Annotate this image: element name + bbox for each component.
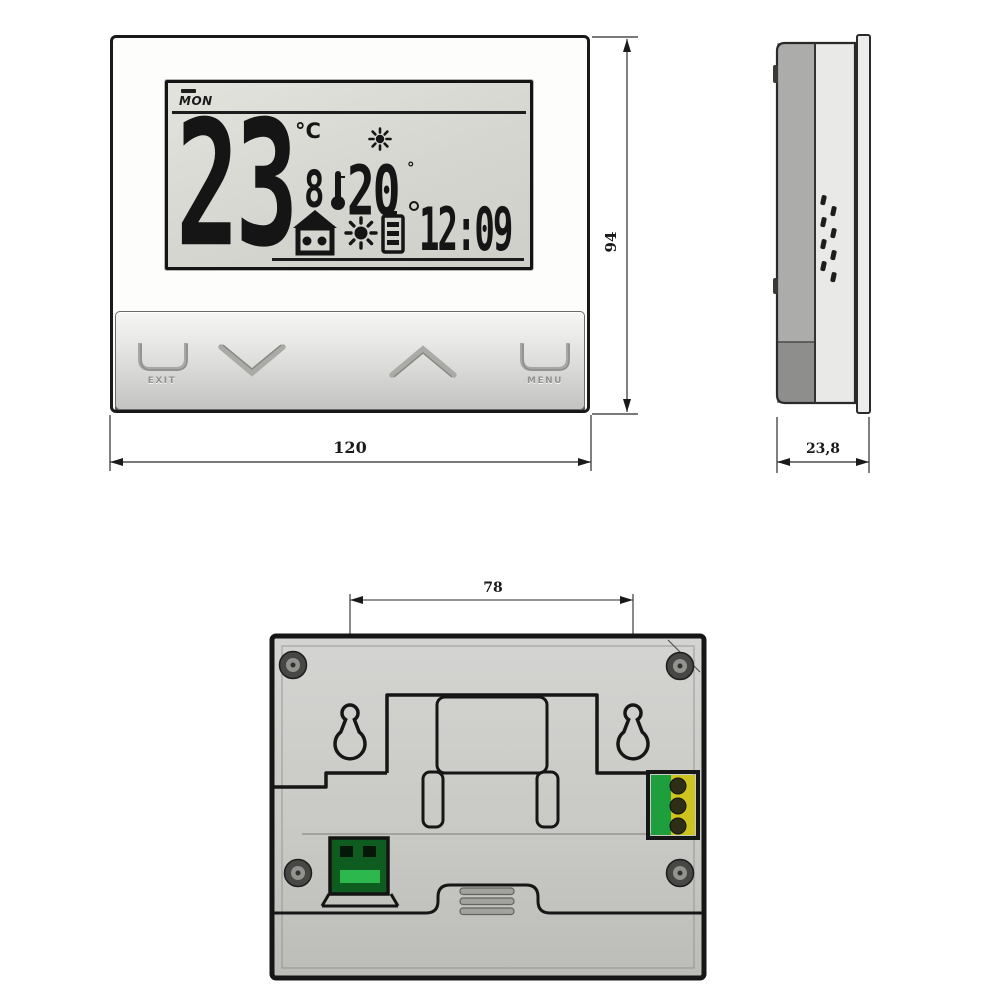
dimension-width-label: 120 [333,438,366,457]
battery-icon [381,210,405,254]
sun-icon [368,127,392,151]
lcd-setpoint-degree: ° [407,159,415,177]
lcd-temperature-unit: °C [295,119,321,143]
mounting-clip [773,278,778,294]
side-bottom-band [777,342,815,403]
drawing-canvas: MON 23 °C 8 20 ° [0,0,1000,1000]
dimension-depth: 23,8 [762,415,892,487]
bracket-key-icon [136,340,190,374]
thermometer-icon [330,169,346,211]
lcd-setpoint-sub-dot [409,201,419,211]
sun-burst-icon [344,216,378,250]
lcd-main-temperature: 23 [176,99,294,272]
back-housing [272,636,704,978]
dimension-height-label: 94 [602,232,620,253]
terminal-block [648,772,698,838]
house-icon [292,208,338,256]
back-view: 78 [266,570,714,984]
lcd-time: 12:09 [419,201,511,261]
lcd-bottom-separator [272,258,524,261]
side-wall-plate [857,35,870,413]
front-view: MON 23 °C 8 20 ° [110,35,590,413]
bracket-key-icon [518,340,572,374]
dimension-hole-spacing-label: 78 [483,580,502,596]
chevron-down-icon [216,342,288,380]
chevron-up-icon [387,342,459,380]
exit-button-label: EXIT [136,376,188,386]
menu-button-label: MENU [519,376,571,386]
dimension-width: 120 [103,413,603,483]
lcd-display: MON 23 °C 8 20 ° [165,80,533,270]
vent-slots-icon [460,888,514,915]
button-bar: EXIT MENU [115,311,585,410]
mounting-clip [773,65,778,83]
dimension-depth-label: 23,8 [806,441,840,457]
